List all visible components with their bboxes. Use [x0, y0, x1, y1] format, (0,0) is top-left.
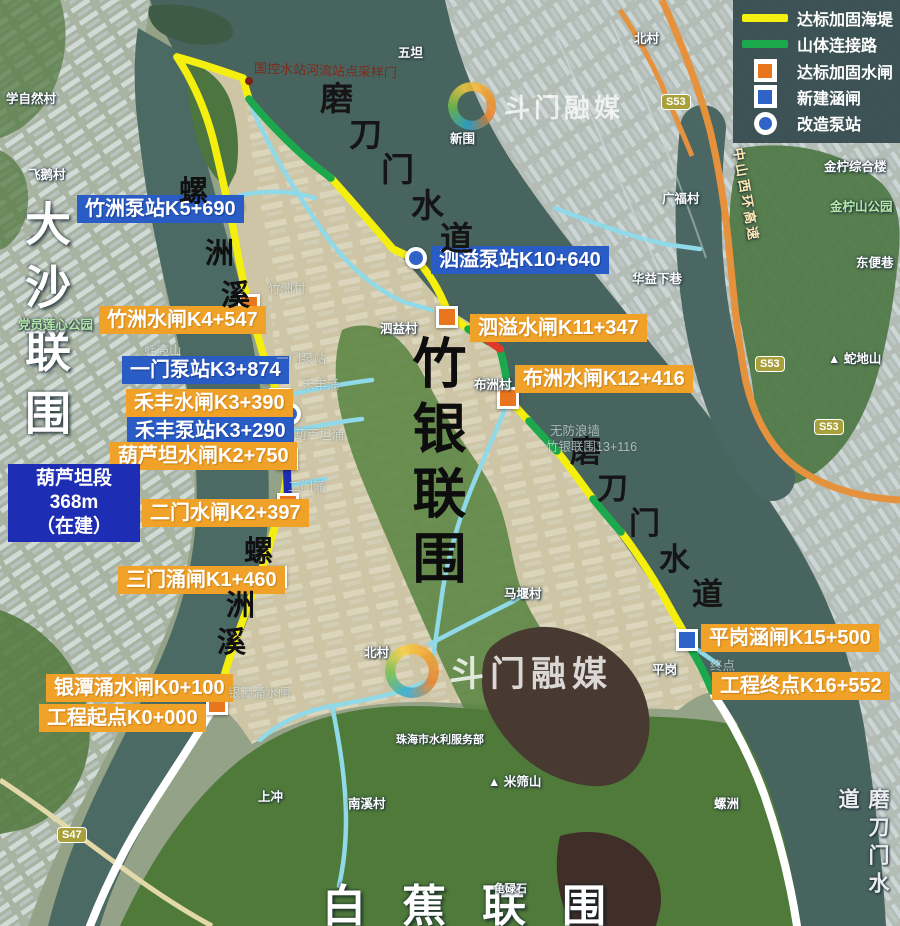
place-label: ▲ 蛇地山: [828, 348, 881, 367]
legend-label: 达标加固水闸: [797, 59, 893, 83]
road-shield-s53: S53: [755, 356, 785, 372]
road-shield-s53: S53: [661, 94, 691, 110]
legend-label: 山体连接路: [797, 32, 877, 56]
road-shield-s47: S47: [57, 827, 87, 843]
place-label: 泗益村: [380, 318, 418, 337]
place-label: 华益下巷: [632, 268, 682, 287]
place-label: 广福村: [662, 188, 700, 207]
blue-circle-swatch: [754, 112, 777, 135]
station-dot: [245, 77, 253, 85]
place-label: 学自然村: [6, 88, 56, 107]
place-label: 珠海市水利服务部: [396, 731, 484, 747]
place-label: 金柠综合楼: [824, 156, 887, 175]
place-label: 东便巷: [856, 252, 894, 271]
callout-ermen-gate: 二门水闸K2+397: [142, 499, 309, 527]
place-label: 党员莲心公园: [18, 314, 93, 333]
region-name-zhuyin: 竹银联围: [395, 335, 474, 595]
callout-hefeng-pump: 禾丰泵站K3+290: [127, 417, 294, 445]
legend-row-pump: 改造泵站: [741, 111, 894, 135]
watermark: 斗门融媒: [448, 82, 624, 130]
callout-hulutan-section: 葫芦坦段368m （在建）: [8, 464, 140, 542]
place-label: 终点: [710, 655, 735, 674]
hulutan-section-line1: 葫芦坦段368m: [14, 467, 134, 515]
blue-square-swatch: [754, 85, 777, 108]
callout-pinggang-gate: 平岗涵闸K15+500: [701, 624, 879, 652]
watermark: 斗门融媒: [385, 644, 613, 698]
yellow-line-swatch: [742, 14, 788, 22]
region-name-baijiao: 白蕉联围: [322, 870, 642, 926]
callout-zhuzhou-pump: 竹洲泵站K5+690: [77, 195, 244, 223]
doumen-media-logo-icon: [378, 637, 446, 705]
place-label: 螺洲: [714, 793, 739, 812]
legend-row-mountain-road: 山体连接路: [741, 32, 894, 56]
place-label: 上冲: [258, 786, 283, 805]
place-label: 银潭涌水闸: [228, 682, 291, 701]
legend-row-culvert: 新建涵闸: [741, 85, 894, 109]
annotated-map: 竹洲泵站K5+690 竹洲水闸K4+547 一门泵站K3+874 禾丰水闸K3+…: [0, 0, 900, 926]
place-label: 飞鹅村: [28, 164, 66, 183]
legend-label: 改造泵站: [797, 111, 861, 135]
place-label: 马堰村: [504, 583, 542, 602]
road-shield-s53: S53: [814, 419, 844, 435]
river-name-modaomen-right: 磨刀门水道: [832, 788, 892, 926]
siyi-gate-marker: [436, 306, 458, 328]
place-label: 竹洲村: [268, 278, 306, 297]
doumen-media-logo-icon: [442, 76, 502, 136]
watermark-text: 斗门融媒: [449, 646, 613, 697]
legend-label: 新建涵闸: [797, 85, 861, 109]
place-label: 平岗: [652, 659, 677, 678]
callout-siyi-gate: 泗溢水闸K11+347: [470, 314, 647, 342]
callout-sanmen-gate: 三门涌闸K1+460: [118, 566, 285, 594]
place-label: 竹银联围13+116: [546, 436, 637, 455]
callout-end-point: 工程终点K16+552: [712, 672, 890, 700]
callout-start-point: 工程起点K0+000: [39, 704, 206, 732]
place-label: 龟碌石: [494, 880, 527, 896]
place-label: 禾丰涌: [302, 374, 340, 393]
siyi-pump-marker: [405, 247, 427, 269]
place-label: 布洲村: [474, 374, 512, 393]
callout-yintan-gate: 银潭涌水闸K0+100: [46, 674, 233, 702]
green-line-swatch: [742, 40, 788, 48]
place-label: 新围: [450, 128, 475, 147]
orange-square-swatch: [754, 59, 777, 82]
legend-row-seawall: 达标加固海堤: [741, 6, 894, 30]
place-label: 南溪村: [348, 793, 386, 812]
place-label: 二门涌: [288, 476, 326, 495]
hulutan-section-line2: （在建）: [14, 515, 134, 539]
place-label: 一门泵站: [276, 348, 326, 367]
place-label: 北村: [634, 28, 659, 47]
legend-label: 达标加固海堤: [797, 6, 893, 30]
callout-hefeng-gate: 禾丰水闸K3+390: [126, 389, 293, 417]
place-label: 蚝壳山: [144, 340, 182, 359]
place-label: 金柠山公园: [830, 196, 893, 215]
callout-buzhou-gate: 布洲水闸K12+416: [515, 365, 693, 393]
watermark-text: 斗门融媒: [504, 88, 624, 125]
callout-yimen-pump: 一门泵站K3+874: [122, 356, 289, 384]
legend-row-gate: 达标加固水闸: [741, 59, 894, 83]
place-label: 葫芦坦涌: [294, 424, 344, 443]
pinggang-culvert-marker: [676, 629, 698, 651]
place-label: ▲ 米筛山: [488, 771, 541, 790]
place-label: 五坦: [398, 42, 423, 61]
map-legend: 达标加固海堤 山体连接路 达标加固水闸 新建涵闸 改造泵站: [733, 0, 900, 143]
